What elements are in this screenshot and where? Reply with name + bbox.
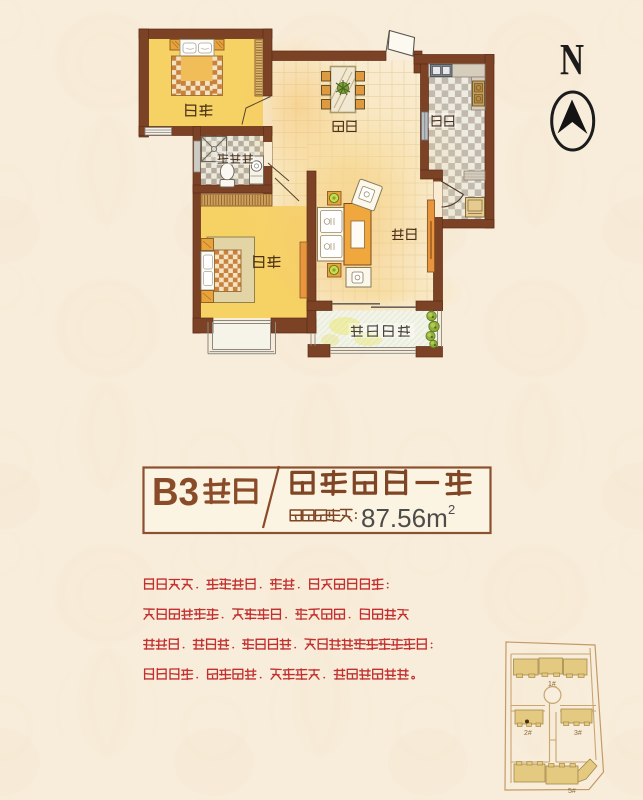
svg-text:B3: B3	[152, 471, 199, 514]
svg-text:87.56m: 87.56m	[361, 503, 448, 533]
svg-text:1#: 1#	[548, 681, 556, 688]
svg-text:5#: 5#	[568, 788, 576, 795]
svg-text:2#: 2#	[524, 730, 532, 737]
svg-text:3#: 3#	[574, 730, 582, 737]
svg-text:2: 2	[448, 502, 455, 517]
svg-text:N: N	[560, 35, 584, 84]
